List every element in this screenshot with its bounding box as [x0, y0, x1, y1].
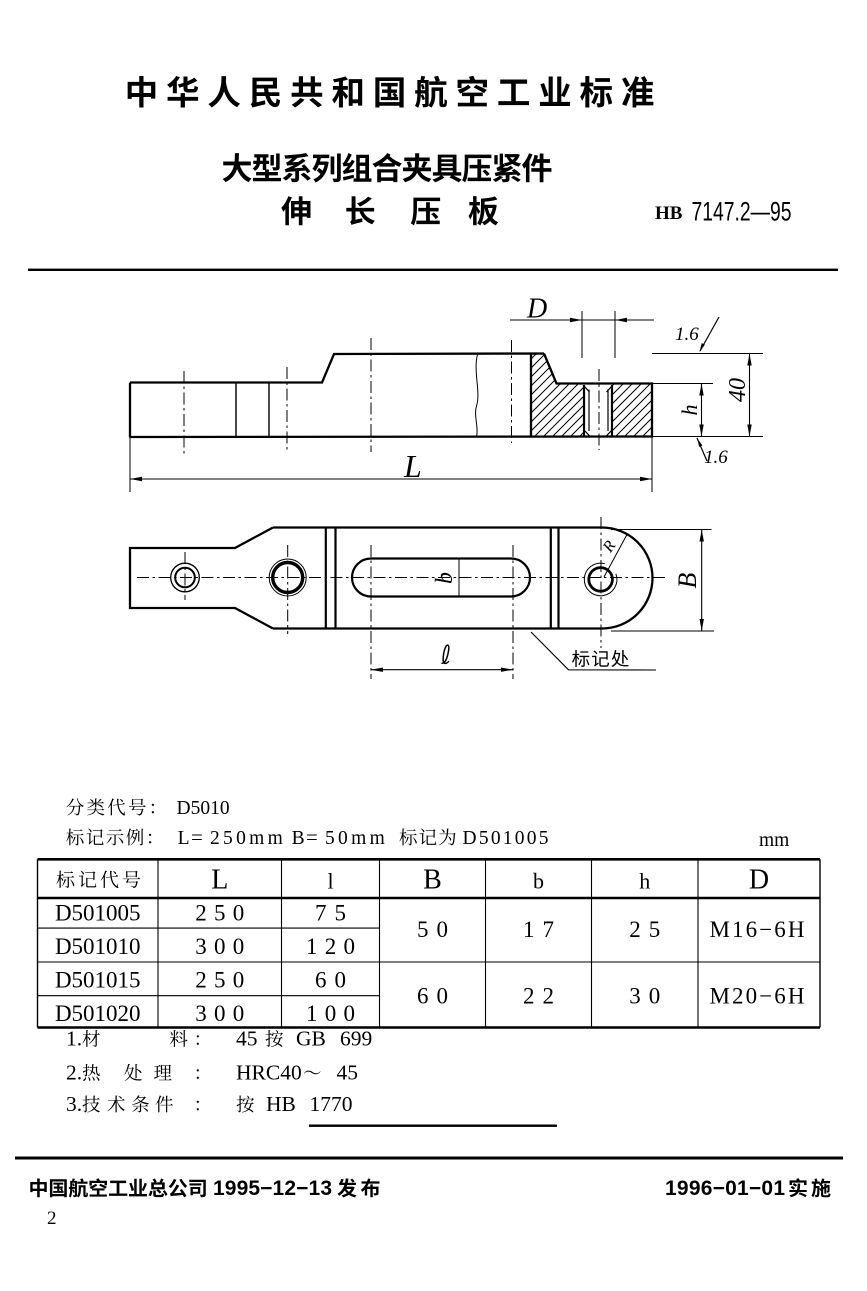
svg-text:1995−12−13: 1995−12−13: [213, 1177, 332, 1200]
svg-text:HB: HB: [655, 203, 683, 224]
svg-text:3.: 3.: [66, 1092, 82, 1116]
svg-text:D501020: D501020: [55, 1001, 141, 1026]
svg-text:GB: GB: [296, 1027, 326, 1051]
svg-text:D: D: [749, 865, 769, 896]
svg-text:40: 40: [725, 378, 751, 402]
svg-text:D501010: D501010: [55, 934, 141, 959]
svg-text:1.: 1.: [66, 1027, 82, 1051]
svg-text:l: l: [327, 869, 333, 894]
svg-text:HRC40: HRC40: [236, 1061, 302, 1085]
svg-text:1770: 1770: [310, 1092, 353, 1116]
svg-text:2.: 2.: [66, 1061, 82, 1085]
svg-text:1.6: 1.6: [704, 447, 728, 468]
svg-text:D: D: [526, 294, 547, 325]
svg-text:250: 250: [195, 968, 244, 993]
svg-text:7147.2—95: 7147.2—95: [692, 197, 792, 227]
svg-text:100: 100: [306, 1001, 355, 1026]
svg-text:mm: mm: [759, 830, 789, 851]
svg-text:B: B: [292, 828, 305, 849]
svg-text:1.6: 1.6: [675, 324, 699, 345]
svg-text:1996−01−01: 1996−01−01: [665, 1177, 785, 1200]
svg-text:h: h: [639, 869, 650, 894]
svg-text:45: 45: [337, 1061, 359, 1085]
svg-text:L: L: [178, 828, 190, 849]
svg-text:699: 699: [340, 1027, 372, 1051]
svg-text:300: 300: [195, 934, 244, 959]
svg-text:=: =: [306, 825, 318, 849]
svg-text:D501005: D501005: [463, 828, 549, 849]
svg-text:D501015: D501015: [55, 968, 141, 993]
svg-text:L: L: [211, 865, 228, 896]
svg-text:b: b: [533, 869, 544, 894]
svg-text:250mm: 250mm: [210, 828, 286, 849]
svg-text:L: L: [403, 448, 422, 484]
svg-text:45: 45: [236, 1027, 258, 1051]
svg-text:B: B: [423, 865, 442, 896]
svg-text:h: h: [677, 405, 702, 416]
svg-text:D501005: D501005: [55, 901, 141, 926]
svg-text:300: 300: [195, 1001, 244, 1026]
svg-text:50mm: 50mm: [325, 828, 388, 849]
svg-text:M20−6H: M20−6H: [710, 984, 805, 1009]
svg-text:D5010: D5010: [177, 798, 230, 819]
svg-text:M16−6H: M16−6H: [710, 917, 805, 942]
svg-text:HB: HB: [266, 1092, 296, 1116]
svg-text:120: 120: [306, 934, 355, 959]
svg-text:=: =: [191, 825, 203, 849]
svg-text:250: 250: [195, 901, 244, 926]
svg-text:2: 2: [47, 1208, 57, 1229]
svg-text:B: B: [673, 572, 702, 588]
